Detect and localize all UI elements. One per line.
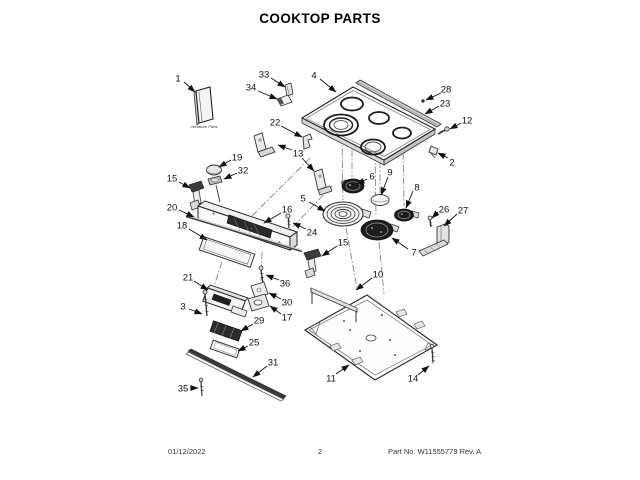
part-number-34: 34 <box>246 83 257 94</box>
leader-arrow-3 <box>189 309 202 314</box>
footer-page-number: 2 <box>0 447 640 456</box>
base-pan-11 <box>305 295 437 380</box>
element-8 <box>395 209 420 221</box>
leader-arrow-19 <box>219 160 231 167</box>
part-number-35: 35 <box>178 384 189 395</box>
leader-arrow-15 <box>322 246 337 256</box>
part-number-9: 9 <box>387 168 392 179</box>
plate-34 <box>277 95 292 106</box>
leader-arrow-13 <box>278 145 292 150</box>
bracket-22 <box>303 134 312 149</box>
part-number-14: 14 <box>408 374 419 385</box>
leader-arrow-16 <box>264 213 281 223</box>
leader-arrow-33 <box>271 78 285 87</box>
part-number-21: 21 <box>183 273 194 284</box>
leader-arrow-31 <box>253 366 267 377</box>
part-number-29: 29 <box>254 316 265 327</box>
leader-arrow-14 <box>418 366 429 375</box>
clip-33 <box>285 83 293 96</box>
part-number-17: 17 <box>282 313 293 324</box>
part-number-36: 36 <box>280 279 291 290</box>
part-number-11: 11 <box>326 374 336 385</box>
bracket-13-left <box>254 133 275 157</box>
part-number-2: 2 <box>449 158 454 169</box>
leader-arrow-34 <box>258 91 277 99</box>
document-page: COOKTOP PARTS Literature Parts <box>0 0 640 480</box>
leader-arrow-1 <box>184 82 195 92</box>
element-7 <box>361 220 399 240</box>
part-number-22: 22 <box>270 118 281 129</box>
bracket-13-right <box>314 169 332 195</box>
bracket-15-right <box>304 249 321 278</box>
part-number-3: 3 <box>180 302 185 313</box>
part-number-25: 25 <box>249 338 260 349</box>
part-number-6: 6 <box>369 172 374 183</box>
screw-24 <box>286 214 291 228</box>
nut-32 <box>208 176 222 202</box>
literature-parts-label: Literature Parts <box>190 124 217 129</box>
part-number-20: 20 <box>167 203 178 214</box>
part-number-27: 27 <box>458 206 469 217</box>
exploded-parts-diagram: Literature Parts <box>0 0 640 480</box>
footer-part-no: Part No. W11555779 Rev. A <box>388 447 481 456</box>
leader-arrow-2 <box>438 153 448 158</box>
part-number-15: 15 <box>338 238 349 249</box>
part-number-13: 13 <box>293 149 304 160</box>
leader-arrow-17 <box>270 306 281 314</box>
leader-arrow-10 <box>356 278 372 290</box>
leader-arrow-5 <box>309 202 325 211</box>
leader-arrow-21 <box>194 281 208 290</box>
leader-arrow-8 <box>406 191 413 208</box>
leader-arrow-9 <box>381 177 388 195</box>
leader-arrow-25 <box>238 346 248 351</box>
leader-arrow-26 <box>432 212 438 218</box>
leader-arrow-15 <box>179 182 190 188</box>
leader-arrow-29 <box>241 324 253 331</box>
part-number-10: 10 <box>373 270 384 281</box>
screw-28 <box>421 99 424 102</box>
part-number-15: 15 <box>167 174 178 185</box>
part-number-28: 28 <box>441 85 452 96</box>
cooktop-glass <box>302 87 435 165</box>
part-number-16: 16 <box>282 205 293 216</box>
leader-arrow-12 <box>450 123 461 129</box>
leader-arrow-36 <box>266 275 279 280</box>
screw-12 <box>438 127 449 135</box>
control-board-21 <box>203 285 248 317</box>
part-number-5: 5 <box>300 194 305 205</box>
leader-arrow-7 <box>392 238 408 249</box>
leader-arrow-11 <box>336 365 349 374</box>
bracket-17 <box>248 294 269 311</box>
part-number-26: 26 <box>439 205 450 216</box>
leader-arrow-32 <box>224 173 237 179</box>
leader-arrow-23 <box>425 106 439 114</box>
part-number-32: 32 <box>238 166 249 177</box>
leader-arrow-24 <box>293 223 306 229</box>
part-number-8: 8 <box>414 183 419 194</box>
part-number-19: 19 <box>232 153 243 164</box>
part-number-23: 23 <box>440 99 451 110</box>
leader-arrow-4 <box>320 79 336 92</box>
leader-arrow-30 <box>269 293 281 299</box>
literature-booklet: Literature Parts <box>190 87 217 129</box>
part-number-31: 31 <box>268 358 279 369</box>
part-number-12: 12 <box>462 116 473 127</box>
leader-arrow-27 <box>444 214 457 226</box>
part-number-7: 7 <box>411 248 416 259</box>
coil-element-5 <box>323 202 371 226</box>
part-number-4: 4 <box>311 71 316 82</box>
part-number-30: 30 <box>282 298 293 309</box>
part-number-33: 33 <box>259 70 270 81</box>
keypad-29 <box>210 321 242 341</box>
clip-2 <box>429 146 438 158</box>
screw-36 <box>259 266 264 283</box>
leader-arrow-22 <box>281 126 302 137</box>
leader-arrow-18 <box>189 229 207 240</box>
disc-9 <box>371 195 389 206</box>
screw-35 <box>199 378 204 396</box>
frame-18 <box>199 237 255 268</box>
plate-25 <box>210 340 239 358</box>
bracket-27 <box>419 224 449 256</box>
part-number-1: 1 <box>175 74 180 85</box>
part-number-18: 18 <box>177 221 188 232</box>
part-number-24: 24 <box>307 228 318 239</box>
element-6 <box>341 179 364 193</box>
